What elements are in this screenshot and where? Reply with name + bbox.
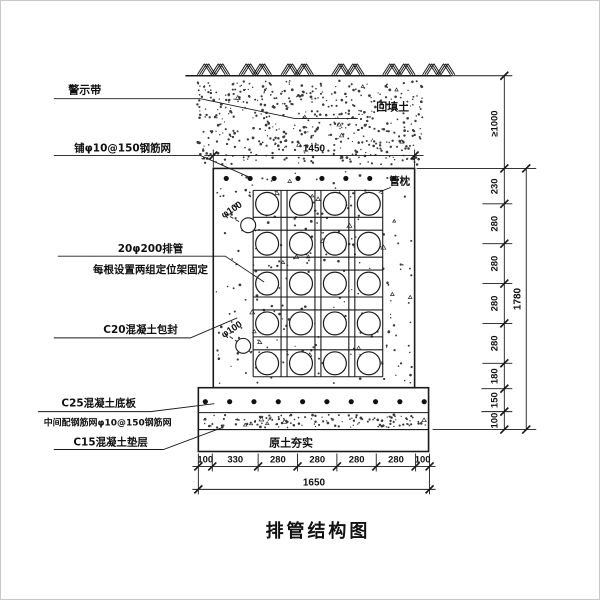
- callout-slab-line1: C25混凝土底板: [61, 397, 136, 410]
- label-phi100-lower: φ100: [219, 319, 244, 341]
- dim-right-3: 280: [489, 296, 500, 312]
- label-pipe-pillow: 管枕: [389, 174, 410, 187]
- callout-warning-tape: 警示带: [67, 83, 101, 97]
- drawing-sheet: 警示带 铺φ10@150钢筋网 20φ200排管 每根设置两组定位架固定 C20…: [0, 0, 600, 600]
- callout-pipes-line1: 20φ200排管: [118, 242, 184, 255]
- dim-right-2: 280: [489, 256, 500, 272]
- dim-right-6: 150: [489, 392, 500, 408]
- dim-right-cover: ≥1000: [489, 110, 500, 136]
- dim-right-1: 280: [489, 216, 500, 232]
- dim-bottom-3: 280: [309, 454, 325, 465]
- dim-bottom-6: 100: [415, 454, 431, 465]
- dim-bottom-0: 100: [197, 454, 213, 465]
- callout-encasement: C20混凝土包封: [103, 323, 178, 336]
- leader-top-mesh: [54, 155, 252, 178]
- dim-bottom-4: 280: [349, 454, 365, 465]
- c20-encasement-block: [213, 168, 414, 387]
- dim-bottom-1: 330: [227, 454, 243, 465]
- dim-right-5: 180: [489, 368, 500, 384]
- drawing-title: 排管结构图: [266, 520, 371, 542]
- dim-right-total: 1780: [512, 287, 523, 310]
- dim-right-4: 280: [489, 335, 500, 351]
- base-slab-outline: [198, 388, 428, 452]
- callout-cushion: C15混凝土垫层: [73, 436, 148, 449]
- dim-right-7: 100: [489, 413, 500, 429]
- dim-bottom-5: 280: [388, 454, 404, 465]
- label-backfill: 回填土: [376, 100, 409, 114]
- callout-slab-line2: 中间配钢筋网φ10@150钢筋网: [44, 417, 172, 429]
- ground-hatch-marks: [197, 64, 455, 75]
- dim-top-width: 1450: [303, 143, 326, 154]
- callout-pipes-line2: 每根设置两组定位架固定: [93, 263, 209, 276]
- dim-right-0: 230: [489, 178, 500, 194]
- callout-top-mesh: 铺φ10@150钢筋网: [74, 141, 171, 154]
- dim-bottom-2: 280: [270, 454, 286, 465]
- duct-pipe-circles: [256, 192, 381, 374]
- dim-bottom-total: 1650: [303, 477, 326, 488]
- pipe-structure-drawing: 警示带 铺φ10@150钢筋网 20φ200排管 每根设置两组定位架固定 C20…: [1, 1, 599, 599]
- callout-texts: 警示带 铺φ10@150钢筋网 20φ200排管 每根设置两组定位架固定 C20…: [44, 83, 411, 450]
- label-compacted-soil: 原土夯实: [269, 436, 313, 450]
- structure-outlines: [185, 76, 451, 452]
